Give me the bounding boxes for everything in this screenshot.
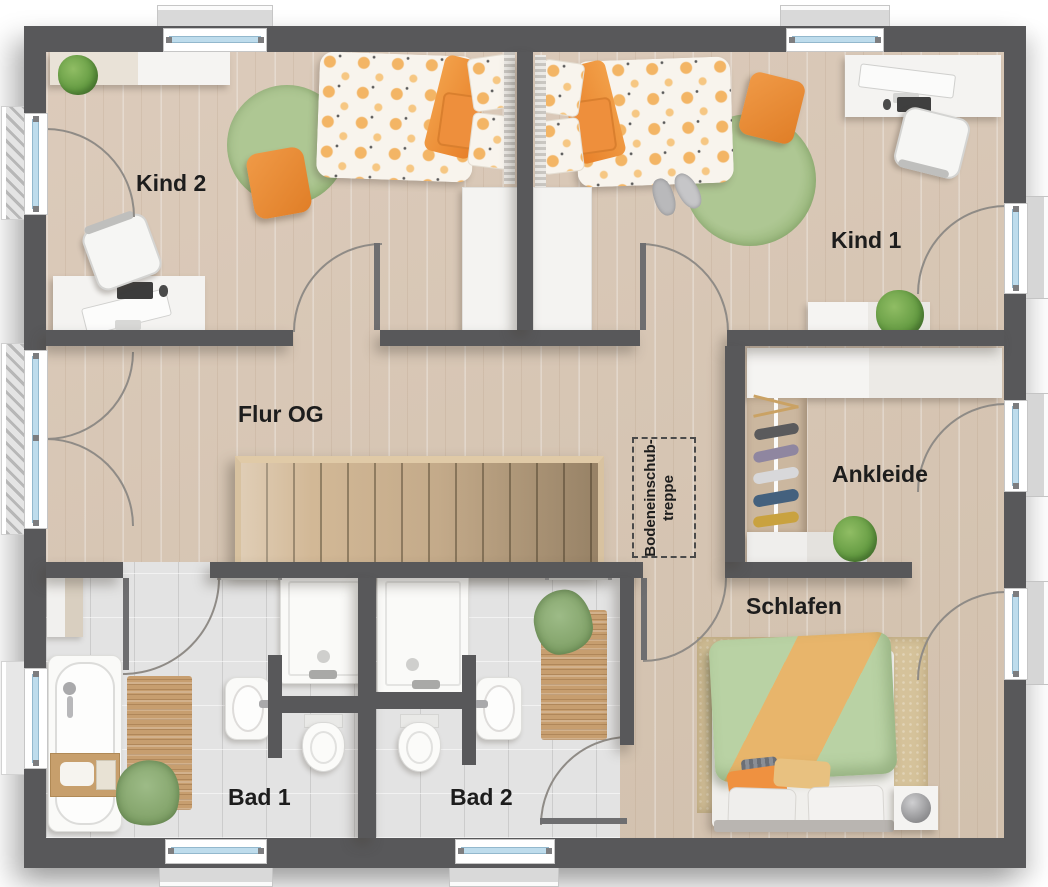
shower-tray-line <box>385 581 461 686</box>
lamp-icon <box>901 793 931 823</box>
kind1-top-window <box>786 28 884 52</box>
flur-left-french-window <box>24 350 48 529</box>
ankleide-wardrobe <box>747 348 1002 398</box>
bad2-shower <box>377 573 469 694</box>
window-handle-icon <box>546 848 552 854</box>
window-handle-icon <box>1013 671 1019 677</box>
sink-basin <box>483 685 515 732</box>
attic-hatch-line1: Bodeneinschub- <box>642 439 660 557</box>
bad1-door-leaf <box>123 578 129 670</box>
window-glass <box>169 36 261 43</box>
bad2-partition-vertical <box>462 655 476 765</box>
wall-between-kids-rooms <box>517 52 533 330</box>
window-handle-icon <box>168 848 174 854</box>
bathtub-faucet-icon <box>63 682 76 695</box>
window-handle-icon <box>33 760 39 766</box>
wall-kind2-flur <box>46 330 293 346</box>
kind2-mouse-icon <box>159 285 168 297</box>
window-handle-icon <box>33 353 39 359</box>
attic-hatch-outline: Bodeneinschub- treppe <box>632 437 696 558</box>
toilet-bowl <box>302 722 345 772</box>
bathtub <box>48 655 122 832</box>
room-label-bad2: Bad 2 <box>450 784 513 811</box>
ankleide-shoe-rack <box>747 398 807 535</box>
window-glass <box>461 847 549 854</box>
bad2-partition-horizontal <box>376 692 476 709</box>
bathtub-faucet-pipe <box>67 696 73 718</box>
toilet-bowl <box>398 722 441 772</box>
window-handle-icon <box>1013 403 1019 409</box>
kind1-desk <box>845 55 1001 117</box>
wall-ankleide-schlafen <box>725 562 912 578</box>
window-handle-icon <box>33 435 39 441</box>
ankleide-plant-icon <box>833 516 877 562</box>
kind2-wardrobe <box>462 187 519 335</box>
bad1-partition-horizontal <box>268 696 368 713</box>
bad1-shower <box>280 573 368 684</box>
bad1-left-window <box>24 668 48 769</box>
shower-faucet-icon <box>309 670 337 679</box>
attic-hatch-line2: treppe <box>660 439 678 557</box>
attic-hatch-label: Bodeneinschub- treppe <box>642 439 688 557</box>
kind2-desk <box>53 276 205 333</box>
room-label-flur: Flur OG <box>238 401 324 428</box>
window-handle-icon <box>789 37 795 43</box>
kind2-headboard <box>504 50 515 184</box>
window-glass <box>171 847 261 854</box>
sink-basin <box>232 685 264 732</box>
window-sill <box>1026 394 1048 496</box>
towel-roll <box>60 762 94 786</box>
window-glass <box>792 36 878 43</box>
window-glass <box>1012 209 1019 288</box>
window-glass <box>1012 406 1019 486</box>
window-sill <box>1026 197 1048 298</box>
kind1-door-leaf <box>640 243 646 330</box>
kind1-bed <box>535 55 732 189</box>
wall-flur-south <box>210 562 643 578</box>
sink-faucet-icon <box>474 700 488 708</box>
staircase <box>235 456 604 575</box>
schlafen-bed <box>710 640 896 832</box>
window-handle-icon <box>33 520 39 526</box>
room-label-bad1: Bad 1 <box>228 784 291 811</box>
shower-drain-icon <box>406 658 419 671</box>
toilet-seat-line <box>310 731 337 764</box>
kind2-pouf <box>245 145 314 220</box>
wall-kind1-ankleide <box>727 330 1004 346</box>
bad2-toilet <box>396 714 441 772</box>
floor-plan: Bodeneinschub- treppe <box>0 0 1048 887</box>
schlafen-headboard <box>714 820 894 832</box>
schlafen-nightstand <box>894 786 938 830</box>
window-handle-icon <box>458 848 464 854</box>
schlafen-tan-pillow <box>773 758 831 790</box>
shower-drain-icon <box>317 650 330 663</box>
ankleide-right-window <box>1004 400 1028 492</box>
bad2-bottom-window <box>455 839 555 864</box>
kind1-headboard <box>535 55 546 189</box>
bad2-sink <box>476 677 522 740</box>
bad2-door-leaf <box>540 818 627 824</box>
window-handle-icon <box>33 116 39 122</box>
kind2-top-window <box>163 28 267 52</box>
wall-bad2-schlafen <box>620 578 634 745</box>
schlafen-door-leaf <box>641 578 647 660</box>
window-handle-icon <box>1013 206 1019 212</box>
kind2-door-leaf <box>374 243 380 330</box>
kind2-plant-icon <box>58 55 98 95</box>
window-glass <box>32 119 39 209</box>
kind1-wardrobe <box>533 187 592 339</box>
room-label-schlafen: Schlafen <box>746 593 842 620</box>
window-handle-icon <box>875 37 881 43</box>
wall-flur-bad1 <box>46 562 123 578</box>
window-glass <box>32 674 39 763</box>
bad1-sink <box>225 677 271 740</box>
kind1-mouse-icon <box>883 99 891 110</box>
bad1-bottom-window <box>165 839 267 864</box>
bad1-toilet <box>300 714 345 772</box>
window-handle-icon <box>1013 285 1019 291</box>
window-handle-icon <box>33 206 39 212</box>
stairs-shading <box>241 463 598 575</box>
wall-ankleide-left <box>725 346 745 562</box>
schlafen-right-window <box>1004 588 1028 680</box>
window-handle-icon <box>1013 483 1019 489</box>
room-label-kind1: Kind 1 <box>831 227 901 254</box>
window-handle-icon <box>258 848 264 854</box>
bath-caddy-tray <box>50 753 120 797</box>
wall-kids-flur <box>380 330 640 346</box>
room-label-kind2: Kind 2 <box>136 170 206 197</box>
window-handle-icon <box>33 671 39 677</box>
kind2-bed <box>318 50 515 184</box>
kind1-right-window <box>1004 203 1028 294</box>
shower-faucet-icon <box>412 680 440 689</box>
window-handle-icon <box>258 37 264 43</box>
kind2-monitor-stand <box>115 320 141 330</box>
window-glass <box>1012 594 1019 674</box>
toilet-seat-line <box>406 731 433 764</box>
window-handle-icon <box>1013 591 1019 597</box>
kind2-left-window <box>24 113 48 215</box>
book-icon <box>96 760 116 790</box>
window-handle-icon <box>166 37 172 43</box>
room-label-ankleide: Ankleide <box>832 461 928 488</box>
window-sill <box>1026 582 1048 684</box>
